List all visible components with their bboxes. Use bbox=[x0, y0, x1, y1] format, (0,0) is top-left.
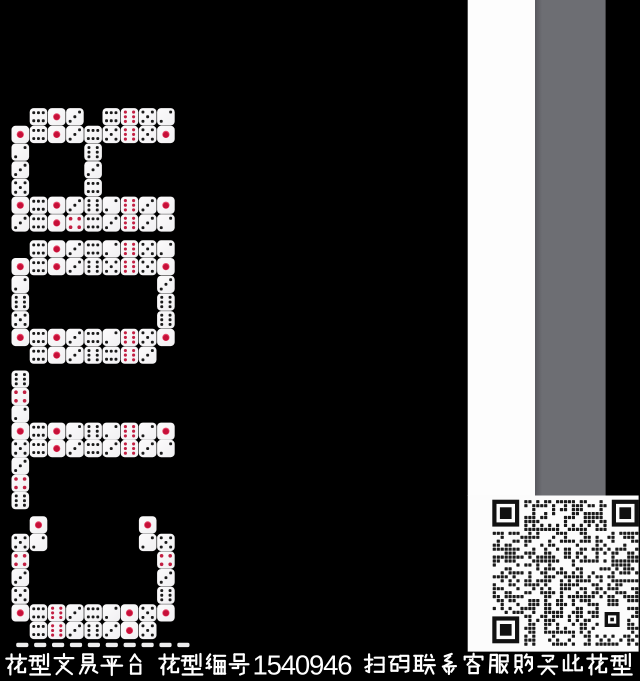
svg-text:1540946: 1540946 bbox=[253, 650, 353, 681]
